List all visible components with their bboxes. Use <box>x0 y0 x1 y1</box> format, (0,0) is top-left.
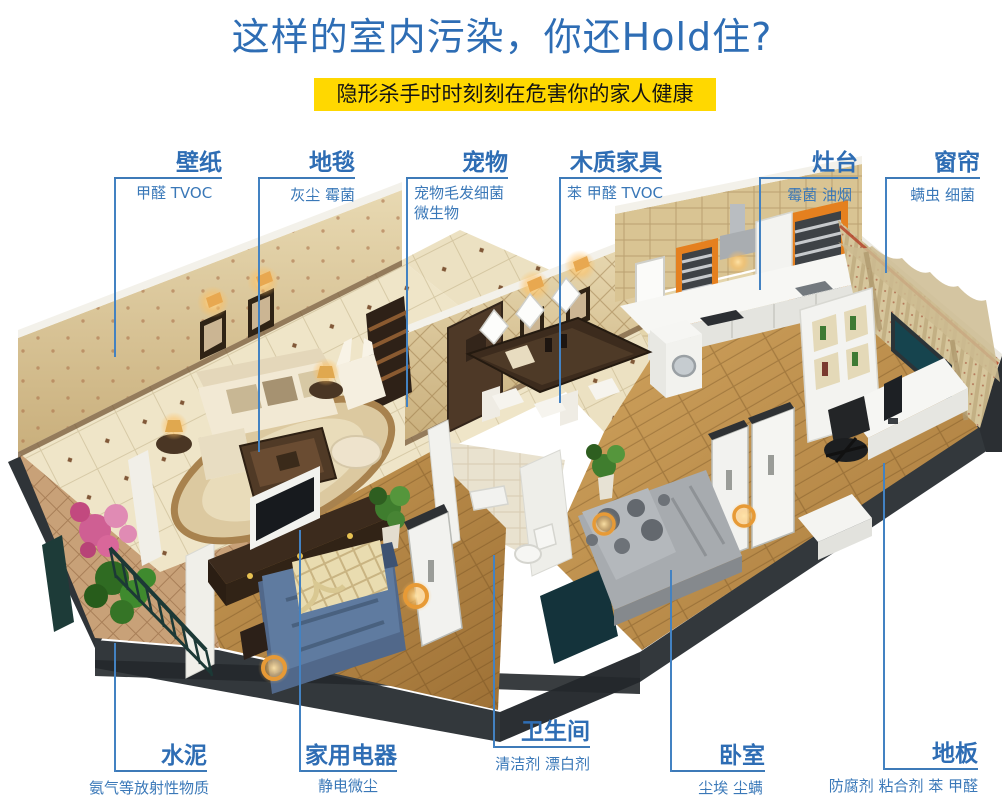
page-title: 这样的室内污染，你还Hold住? <box>0 6 1004 61</box>
callout-sub: 甲醛 TVOC <box>114 183 222 203</box>
leader-line-floor <box>883 463 885 770</box>
callout-home-appliance: 家用电器 静电微尘 <box>299 743 397 796</box>
range-hood <box>730 204 745 234</box>
leader-line-cement <box>114 643 116 772</box>
callout-stove: 灶台 霉菌 油烟 <box>759 150 858 179</box>
callout-floor: 地板 防腐剂 粘合剂 苯 甲醛 <box>883 741 978 770</box>
apartment-illustration <box>0 0 1004 806</box>
callout-sub: 灰尘 霉菌 <box>290 185 355 205</box>
callout-sub: 宠物毛发细菌 微生物 <box>406 183 508 224</box>
callout-sub: 螨虫 细菌 <box>910 185 975 205</box>
callout-wood-furniture: 木质家具 苯 甲醛 TVOC <box>559 150 662 203</box>
washing-machine <box>650 320 702 398</box>
callout-title: 地板 <box>883 741 978 770</box>
callout-sub: 氨气等放射性物质 <box>89 778 209 798</box>
callout-sub: 尘埃 尘螨 <box>698 778 763 798</box>
callout-sub: 清洁剂 漂白剂 <box>495 754 590 774</box>
leader-line-home-appliance <box>299 530 301 772</box>
callout-bathroom: 卫生间 清洁剂 漂白剂 <box>493 719 590 748</box>
callout-title: 木质家具 <box>559 150 662 179</box>
callout-bedroom: 卧室 尘埃 尘螨 <box>670 743 765 772</box>
leader-line-bedroom <box>670 570 672 772</box>
leader-line-bathroom <box>493 555 495 748</box>
ottoman <box>331 436 381 468</box>
leader-line-wood-furniture <box>559 179 561 403</box>
callout-title: 水泥 <box>114 743 207 772</box>
callout-title: 窗帘 <box>885 150 980 179</box>
callout-curtain: 窗帘 螨虫 细菌 <box>885 150 980 179</box>
callout-cement: 水泥 氨气等放射性物质 <box>114 743 207 772</box>
callout-sub: 防腐剂 粘合剂 苯 甲醛 <box>829 776 978 796</box>
callout-sub: 苯 甲醛 TVOC <box>559 183 662 203</box>
callout-carpet: 地毯 灰尘 霉菌 <box>258 150 355 179</box>
callout-title: 家用电器 <box>299 743 397 772</box>
callout-title: 地毯 <box>258 150 355 179</box>
callout-title: 壁纸 <box>114 150 222 179</box>
leader-line-stove <box>759 179 761 290</box>
callout-pet: 宠物 宠物毛发细菌 微生物 <box>406 150 508 224</box>
leader-line-wallpaper <box>114 179 116 357</box>
leader-line-carpet <box>258 179 260 452</box>
callout-title: 卧室 <box>670 743 765 772</box>
callout-sub: 霉菌 油烟 <box>787 185 852 205</box>
leader-line-curtain <box>885 179 887 273</box>
callout-title: 灶台 <box>759 150 858 179</box>
callout-title: 宠物 <box>406 150 508 179</box>
callout-sub: 静电微尘 <box>299 776 397 796</box>
leader-line-pet <box>406 179 408 407</box>
callout-wallpaper: 壁纸 甲醛 TVOC <box>114 150 222 203</box>
infographic-root: 这样的室内污染，你还Hold住? 隐形杀手时时刻刻在危害你的家人健康 壁纸 甲醛… <box>0 0 1004 806</box>
subtitle-banner: 隐形杀手时时刻刻在危害你的家人健康 <box>314 78 716 111</box>
callout-title: 卫生间 <box>493 719 590 748</box>
